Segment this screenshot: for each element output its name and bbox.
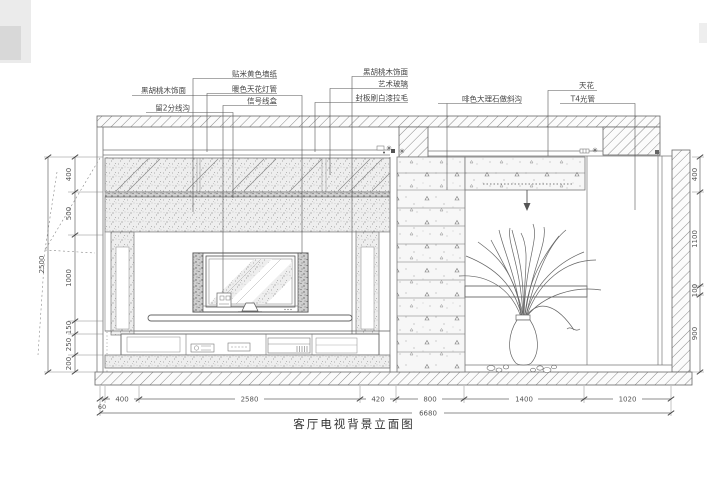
callout-ceiling: 天花 xyxy=(579,80,594,90)
dvd-player xyxy=(191,344,214,352)
dim-right-400: 400 xyxy=(691,168,699,181)
floating-shelf xyxy=(148,315,352,321)
down-arrow xyxy=(524,190,531,211)
pebbles xyxy=(487,365,557,373)
signal-box xyxy=(217,293,231,307)
dim-bottom-800: 800 xyxy=(423,396,436,404)
callout-wallpaper: 贴米黄色墙纸 xyxy=(232,69,277,79)
ceiling-clip-mark xyxy=(391,149,395,153)
tv xyxy=(193,253,308,312)
right-wall xyxy=(672,150,690,372)
tv-speaker-right xyxy=(298,253,308,312)
plant-vase xyxy=(510,315,538,365)
dim-left-total-2500: 2500 xyxy=(38,256,46,274)
trim-strip xyxy=(105,192,390,197)
right-panel xyxy=(587,156,662,365)
art-glass-band xyxy=(105,158,390,192)
dim-left-500: 500 xyxy=(65,207,73,220)
tv-speaker-left xyxy=(193,253,203,312)
scan-artifacts xyxy=(0,0,707,63)
drawing-title: 客厅电视背景立面图 xyxy=(293,417,415,431)
dim-bottom-60: 60 xyxy=(98,403,106,411)
dim-right-100: 100 xyxy=(691,284,699,297)
dim-bottom-400: 400 xyxy=(115,396,128,404)
elevation-drawing: 黑胡桃木饰面 留2分线沟 贴米黄色墙纸 暖色天花灯管 信号线盒 黑胡桃木饰面 艺… xyxy=(0,0,707,500)
plant-branches xyxy=(459,224,601,330)
dropped-ceiling xyxy=(103,146,390,155)
wallpaper-band xyxy=(105,197,390,232)
dim-bottom-1020: 1020 xyxy=(619,396,637,404)
dim-right-900: 900 xyxy=(691,327,699,340)
dim-left-250: 250 xyxy=(65,338,73,351)
dim-left-400: 400 xyxy=(65,168,73,181)
ceiling-fixture-mark xyxy=(387,146,392,151)
dim-right-1100: 1100 xyxy=(691,230,699,248)
dim-bottom-total-6680: 6680 xyxy=(419,410,437,418)
panel-top-clip xyxy=(655,150,659,154)
dim-bottom-2580: 2580 xyxy=(241,396,259,404)
floor-slab xyxy=(95,372,692,385)
plinth xyxy=(105,355,390,368)
dim-left-150: 150 xyxy=(65,321,73,334)
callout-white-paint-board: 封板刷白漆拉毛 xyxy=(356,93,409,103)
callout-t4-tube: T4光管 xyxy=(570,94,596,104)
ceiling-slab xyxy=(97,116,660,127)
ceiling-bulkhead xyxy=(603,127,660,155)
callout-groove: 留2分线沟 xyxy=(155,103,190,113)
media-player xyxy=(228,343,250,351)
track-clip xyxy=(580,149,589,153)
callout-art-glass: 艺术玻璃 xyxy=(378,79,408,89)
stone-feature-section xyxy=(391,148,672,373)
dim-bottom-420: 420 xyxy=(371,396,384,404)
callout-signal-box: 信号线盒 xyxy=(247,96,277,106)
dim-bottom-1400: 1400 xyxy=(515,396,533,404)
av-receiver xyxy=(268,338,310,353)
stone-band xyxy=(465,157,585,190)
dim-left-200: 200 xyxy=(65,357,73,370)
callout-walnut-veneer-1: 黑胡桃木饰面 xyxy=(141,85,186,95)
stone-column xyxy=(397,157,465,372)
dim-left-1000: 1000 xyxy=(65,269,73,287)
elevation-sheet: 黑胡桃木饰面 留2分线沟 贴米黄色墙纸 暖色天花灯管 信号线盒 黑胡桃木饰面 艺… xyxy=(0,0,707,500)
callout-walnut-veneer-2: 黑胡桃木饰面 xyxy=(363,67,408,77)
plant xyxy=(459,224,601,373)
media-cabinet xyxy=(121,334,379,355)
callout-warm-lamp: 暖色天花灯管 xyxy=(232,84,277,94)
tv-wall-section xyxy=(103,146,404,372)
callout-stone-slope: 啡色大理石做斜沟 xyxy=(462,94,522,104)
